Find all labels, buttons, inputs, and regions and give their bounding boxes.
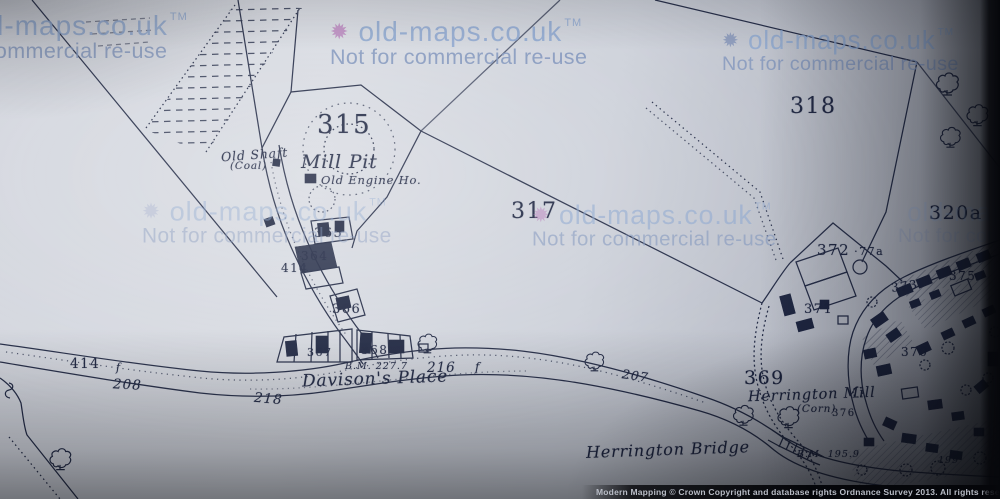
map-labels: 315 Old Shaft (Coal) Mill Pit Old Engine… [0,0,1000,499]
parcel-372-area: ·77a [854,245,884,258]
label-old-engine: Old Engine Ho. [321,173,421,187]
copyright-bar: Modern Mapping © Crown Copyright and dat… [582,485,1000,499]
label-parcel-414-road: 414 [70,356,100,372]
label-f-mark-1: f [475,360,480,374]
copyright-text: Modern Mapping © Crown Copyright and dat… [596,487,1000,497]
label-parcel-365: 365 [314,226,343,241]
label-parcel-373: 373 [890,277,919,295]
label-parcel-367: 367 [307,346,333,359]
screen-edge-shadow [980,0,1000,499]
label-parcel-414-terrace: 414 [281,261,308,275]
label-davisons-place: Davison's Place [302,366,449,391]
label-parcel-372: 372·77a [817,241,884,260]
label-parcel-376: 376 [832,408,856,419]
label-parcel-218: 218 [253,390,283,408]
label-parcel-375: 375 [949,269,976,283]
map-canvas[interactable]: 315 Old Shaft (Coal) Mill Pit Old Engine… [0,0,1000,499]
label-parcel-368: 368 [361,343,388,357]
label-parcel-318: 318 [790,94,837,119]
label-old-shaft-coal: (Coal) [230,160,267,172]
label-herrington-bridge: Herrington Bridge [586,437,750,462]
label-parcel-317: 317 [511,199,558,224]
label-parcel-315: 315 [317,110,371,140]
label-f-mark-2: f [116,361,121,374]
parcel-372-number: 372 [817,241,850,259]
label-parcel-366: 366 [332,302,361,317]
label-parcel-369: 369 [744,367,785,389]
label-mill-pit: Mill Pit [301,151,378,173]
label-herrington-mill-corn: (Corn) [797,403,836,415]
label-parcel-199: 199 [938,455,959,466]
label-parcel-208: 208 [113,376,143,393]
label-parcel-370: 370 [901,345,928,359]
label-benchmark-bridge: B.M. 195.9 [797,449,860,460]
label-parcel-320a: 320a [929,202,983,224]
old-map-photo: 315 Old Shaft (Coal) Mill Pit Old Engine… [0,0,1000,499]
label-parcel-207: 207 [621,366,650,385]
label-parcel-371: 371 [804,302,833,317]
